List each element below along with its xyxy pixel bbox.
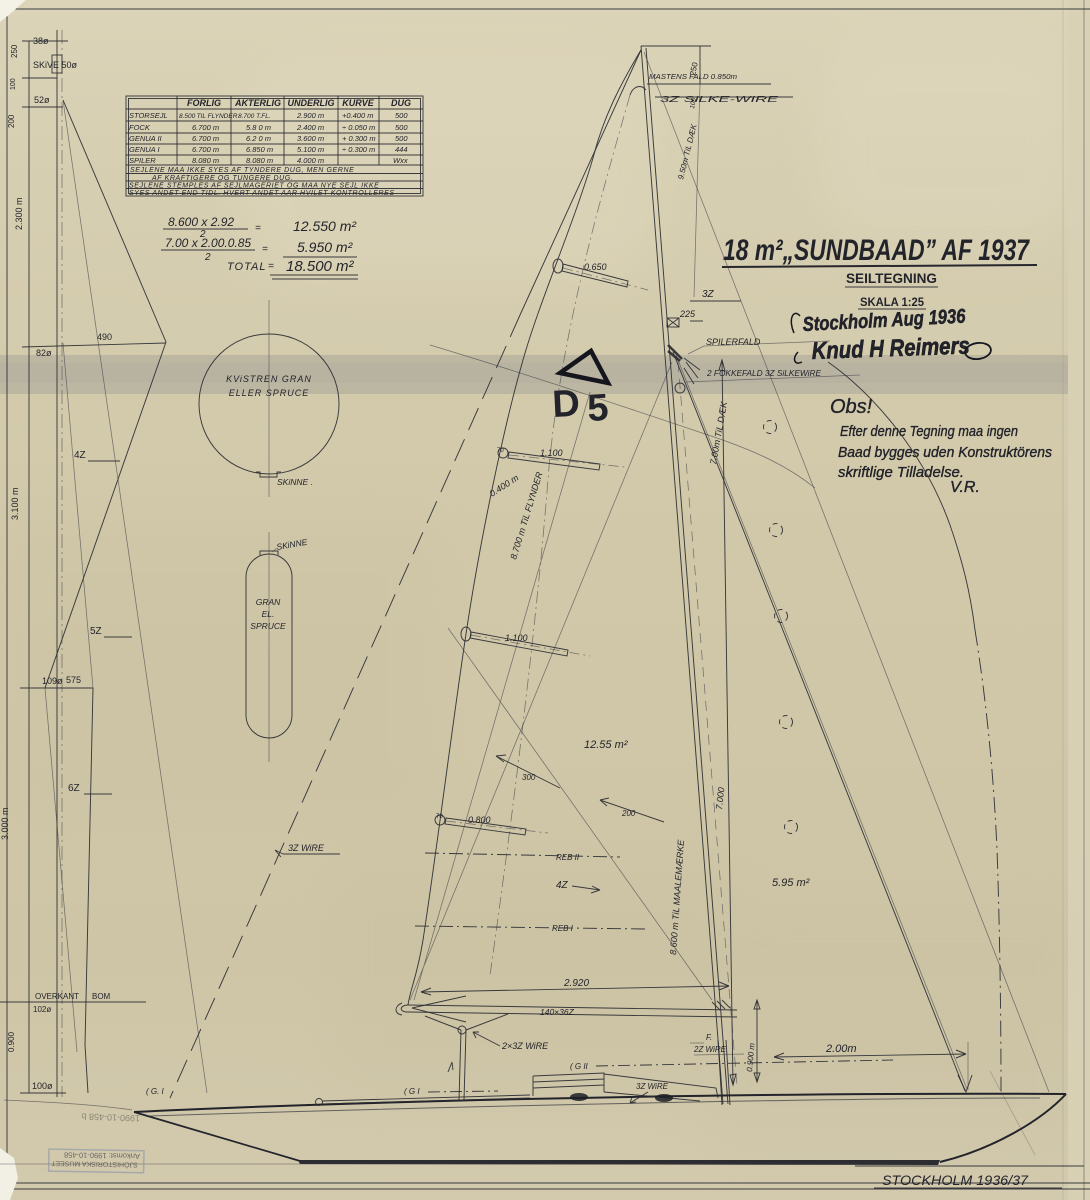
svg-text:6.700 m: 6.700 m: [192, 123, 219, 132]
svg-text:6Z: 6Z: [68, 783, 80, 794]
svg-text:GENUA I: GENUA I: [129, 145, 160, 154]
svg-text:5.100 m: 5.100 m: [297, 145, 324, 154]
svg-text:3.000 m: 3.000 m: [0, 807, 10, 840]
svg-text:KURVE: KURVE: [342, 98, 375, 108]
svg-text:MASTENS FALD 0.850m: MASTENS FALD 0.850m: [649, 72, 737, 81]
svg-text:3Z SiLKE-WIRE: 3Z SiLKE-WIRE: [660, 94, 779, 104]
svg-text:+0.400 m: +0.400 m: [342, 111, 373, 120]
svg-text:REB II: REB II: [556, 853, 580, 862]
svg-text:6.850 m: 6.850 m: [246, 145, 273, 154]
svg-text:18.500 m²: 18.500 m²: [286, 258, 355, 275]
svg-text:0.800: 0.800: [468, 815, 491, 825]
svg-text:ELLER SPRUCE: ELLER SPRUCE: [229, 388, 310, 398]
svg-text:SKiNNE .: SKiNNE .: [277, 477, 313, 487]
svg-text:109ø: 109ø: [42, 676, 63, 686]
svg-text:140×36Z: 140×36Z: [540, 1007, 575, 1017]
svg-text:( G. I: ( G. I: [146, 1087, 165, 1096]
svg-text:70: 70: [436, 814, 443, 820]
svg-text:575: 575: [66, 675, 81, 685]
svg-text:BOM: BOM: [92, 992, 111, 1001]
svg-text:8.700 T.FL.: 8.700 T.FL.: [238, 113, 271, 120]
svg-text:18 m²„SUNDBAAD” AF 1937: 18 m²„SUNDBAAD” AF 1937: [723, 234, 1030, 267]
svg-text:REB I: REB I: [552, 924, 574, 933]
svg-text:5.95 m²: 5.95 m²: [772, 877, 810, 889]
svg-text:2.300 m: 2.300 m: [14, 197, 24, 230]
svg-text:EL.: EL.: [262, 609, 275, 619]
svg-text:4Z: 4Z: [74, 450, 86, 461]
svg-text:3.600 m: 3.600 m: [297, 134, 324, 143]
svg-text:2.920: 2.920: [563, 978, 589, 989]
svg-text:SYES ANDET END TIDL. HVERT AND: SYES ANDET END TIDL. HVERT ANDET AAR HVI…: [129, 190, 395, 197]
svg-text:3Z WiRE: 3Z WiRE: [636, 1082, 669, 1091]
svg-text:Efter denne Tegning maa ingen: Efter denne Tegning maa ingen: [840, 423, 1018, 440]
svg-text:444: 444: [395, 145, 408, 154]
svg-text:GRAN: GRAN: [256, 597, 281, 607]
svg-text:SKiVE 50ø: SKiVE 50ø: [33, 60, 78, 70]
svg-text:1.100: 1.100: [540, 448, 563, 458]
svg-text:OVERKANT: OVERKANT: [35, 992, 79, 1001]
svg-text:( G II: ( G II: [570, 1062, 589, 1071]
svg-text:8.600 x 2.92: 8.600 x 2.92: [168, 215, 234, 229]
svg-text:F.: F.: [706, 1033, 712, 1042]
svg-text:AF KRAFTIGERE OG TUNGERE DUG.: AF KRAFTIGERE OG TUNGERE DUG.: [151, 175, 293, 182]
svg-text:Obs!: Obs!: [830, 396, 873, 418]
svg-text:8.080 m: 8.080 m: [192, 156, 219, 165]
svg-text:3Z: 3Z: [702, 289, 715, 300]
svg-text:6.700 m: 6.700 m: [192, 145, 219, 154]
svg-text:200: 200: [7, 114, 16, 128]
svg-text:500: 500: [395, 123, 408, 132]
svg-text:2.900 m: 2.900 m: [296, 111, 324, 120]
svg-text:SPRUCE: SPRUCE: [250, 621, 286, 631]
svg-text:+ 0.300 m: + 0.300 m: [342, 134, 376, 143]
svg-text:=: =: [255, 223, 261, 234]
svg-text:STOCKHOLM 1936/37: STOCKHOLM 1936/37: [882, 1172, 1029, 1188]
svg-text:SPILER: SPILER: [129, 156, 156, 165]
svg-text:Ankomst: 1990-10-458: Ankomst: 1990-10-458: [64, 1150, 140, 1160]
svg-text:KViSTREN GRAN: KViSTREN GRAN: [226, 374, 312, 384]
svg-text:Baad bygges uden Konstruktören: Baad bygges uden Konstruktörens: [838, 444, 1052, 461]
svg-text:225: 225: [679, 309, 696, 319]
svg-text:skriftlige Tilladelse.: skriftlige Tilladelse.: [838, 464, 964, 481]
svg-text:100ø: 100ø: [32, 1081, 53, 1091]
svg-text:5.950 m²: 5.950 m²: [297, 239, 354, 255]
svg-text:D: D: [551, 383, 581, 426]
svg-text:5Z: 5Z: [90, 626, 102, 637]
svg-text:0.900: 0.900: [7, 1031, 16, 1052]
svg-text:FORLIG: FORLIG: [187, 98, 221, 108]
svg-text:38ø: 38ø: [33, 36, 49, 46]
svg-text:8.500 TIL FLYNDER: 8.500 TIL FLYNDER: [179, 113, 238, 120]
svg-text:( G I: ( G I: [404, 1087, 420, 1096]
svg-text:÷ 0.300 m: ÷ 0.300 m: [342, 145, 375, 154]
svg-text:Wxx: Wxx: [393, 156, 408, 165]
svg-text:300: 300: [522, 773, 536, 782]
svg-text:200: 200: [621, 809, 636, 818]
svg-text:12.550 m²: 12.550 m²: [293, 218, 357, 234]
svg-text:500: 500: [395, 111, 408, 120]
svg-text:490: 490: [97, 332, 112, 342]
svg-text:=: =: [268, 261, 274, 272]
svg-text:2.00m: 2.00m: [825, 1043, 857, 1055]
svg-text:GENUA II: GENUA II: [129, 134, 162, 143]
svg-text:AKTERLIG: AKTERLIG: [234, 98, 281, 108]
svg-text:SEJLENE MAA IKKE SYES AF TYNDE: SEJLENE MAA IKKE SYES AF TYNDERE DUG, ME…: [130, 167, 354, 174]
svg-text:6.2 0 m: 6.2 0 m: [246, 134, 271, 143]
svg-text:2×3Z WiRE: 2×3Z WiRE: [501, 1041, 549, 1051]
svg-text:DUG: DUG: [391, 98, 411, 108]
svg-text:÷ 0.050 m: ÷ 0.050 m: [342, 123, 375, 132]
svg-text:3Z WiRE: 3Z WiRE: [288, 843, 325, 853]
svg-text:Knud H Reimers: Knud H Reimers: [811, 332, 970, 364]
svg-text:=: =: [262, 244, 268, 255]
svg-text:82ø: 82ø: [36, 348, 52, 358]
svg-text:70: 70: [497, 448, 504, 454]
svg-text:2: 2: [204, 252, 211, 263]
svg-text:4.000 m: 4.000 m: [297, 156, 324, 165]
svg-text:SEJLENE STEMPLES AF SEJLMAGERI: SEJLENE STEMPLES AF SEJLMAGERIET OG MAA …: [129, 183, 379, 190]
svg-text:SEILTEGNING: SEILTEGNING: [846, 271, 937, 286]
svg-text:1990-10-458 b: 1990-10-458 b: [81, 1111, 140, 1123]
svg-text:102ø: 102ø: [33, 1005, 51, 1014]
svg-text:500: 500: [395, 134, 408, 143]
svg-text:6.700 m: 6.700 m: [192, 134, 219, 143]
svg-text:2Z WiRE: 2Z WiRE: [693, 1045, 727, 1054]
svg-text:UNDERLIG: UNDERLIG: [288, 98, 335, 108]
svg-text:2.400 m: 2.400 m: [296, 123, 324, 132]
svg-text:TOTAL: TOTAL: [227, 261, 266, 273]
svg-text:0.650: 0.650: [584, 262, 607, 272]
svg-text:4Z: 4Z: [556, 880, 569, 891]
svg-text:3.100 m: 3.100 m: [10, 487, 20, 520]
svg-text:FOCK: FOCK: [129, 123, 151, 132]
svg-text:100: 100: [10, 78, 17, 90]
svg-text:V.R.: V.R.: [950, 479, 980, 496]
svg-text:1.100: 1.100: [505, 633, 528, 643]
svg-text:8.080 m: 8.080 m: [246, 156, 273, 165]
svg-text:250: 250: [10, 44, 19, 58]
svg-text:STORSEJL: STORSEJL: [129, 111, 168, 120]
svg-text:7.00 x 2.00.0.85: 7.00 x 2.00.0.85: [165, 236, 251, 250]
svg-text:12.55 m²: 12.55 m²: [584, 739, 628, 751]
svg-text:5.8 0 m: 5.8 0 m: [246, 123, 271, 132]
svg-text:52ø: 52ø: [34, 95, 50, 105]
